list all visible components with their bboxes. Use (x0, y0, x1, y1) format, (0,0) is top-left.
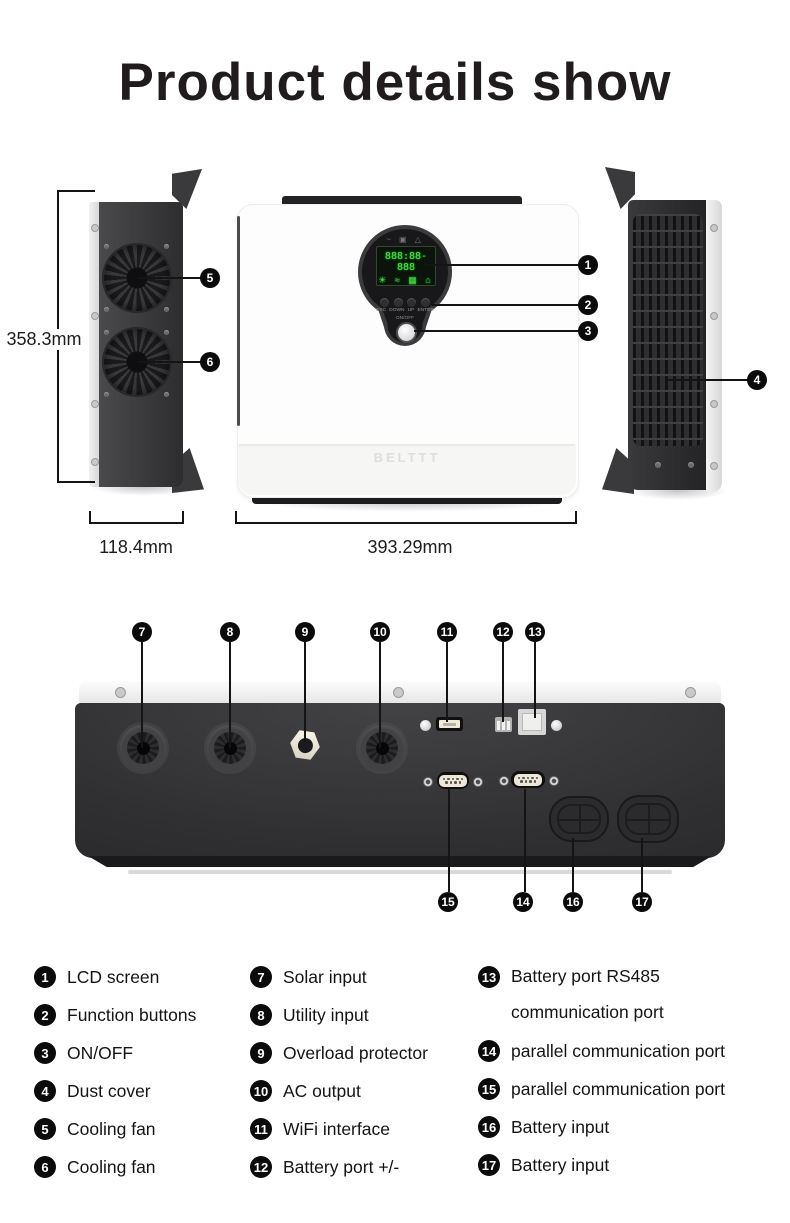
legend-label-14: parallel communication port (511, 1041, 725, 1062)
screw (710, 462, 718, 470)
callout-line-15 (448, 789, 450, 892)
legend-badge-3: 3 (34, 1042, 56, 1064)
screw (164, 244, 169, 249)
oval-inner (625, 803, 671, 834)
callout-badge-12: 12 (493, 622, 513, 642)
screw (164, 307, 169, 312)
legend-label-13: Battery port RS485 communication port (511, 958, 664, 1030)
grommet-ring (366, 732, 398, 764)
legend-badge-11: 11 (250, 1118, 272, 1140)
function-buttons (380, 298, 430, 307)
legend-badge-16: 16 (478, 1116, 500, 1138)
indicator-led (550, 719, 563, 732)
front-view-seam (239, 444, 575, 446)
db9-pin-row (445, 781, 461, 784)
callout-line-9 (304, 642, 306, 742)
callout-line-17 (641, 838, 643, 892)
callout-badge-2: 2 (578, 295, 598, 315)
legend-label-3: ON/OFF (67, 1043, 133, 1064)
screw (91, 400, 99, 408)
screw (164, 330, 169, 335)
depth-dimension-label: 118.4mm (86, 537, 186, 558)
parallel-port-db9-right[interactable] (511, 771, 545, 788)
callout-badge-4: 4 (747, 370, 767, 390)
callout-line-3 (414, 330, 578, 332)
legend-column-1: 1 LCD screen 2 Function buttons 3 ON/OFF… (34, 958, 196, 1186)
page-title: Product details show (0, 52, 790, 113)
wifi-usb-port[interactable] (436, 717, 463, 731)
legend-label-11: WiFi interface (283, 1119, 390, 1140)
callout-line-6 (138, 361, 202, 363)
legend-item-16: 16 Battery input (478, 1108, 725, 1146)
function-button-labels: ESC DOWN UP ENTER (376, 308, 434, 313)
legend-item-4: 4 Dust cover (34, 1072, 196, 1110)
legend-item-3: 3 ON/OFF (34, 1034, 196, 1072)
depth-dimension-tick-right (182, 511, 184, 524)
screw (688, 462, 694, 468)
height-dimension-tick-top (57, 190, 95, 192)
width-dimension-line (235, 522, 577, 524)
terminal-pin (497, 721, 500, 730)
legend-column-3: 13 Battery port RS485 communication port… (478, 958, 725, 1184)
legend-item-9: 9 Overload protector (250, 1034, 428, 1072)
bottom-view-base (88, 856, 712, 867)
legend-badge-15: 15 (478, 1078, 500, 1100)
callout-line-14 (524, 789, 526, 892)
db9-pin-row (518, 777, 539, 780)
grommet-center (137, 742, 150, 755)
legend-badge-8: 8 (250, 1004, 272, 1026)
legend-badge-1: 1 (34, 966, 56, 988)
depth-dimension-tick-left (89, 511, 91, 524)
legend-item-12: 12 Battery port +/- (250, 1148, 428, 1186)
depth-dimension-line (89, 522, 184, 524)
front-view-left-edge (237, 216, 240, 426)
screw (115, 687, 126, 698)
callout-badge-17: 17 (632, 892, 652, 912)
legend-badge-14: 14 (478, 1040, 500, 1062)
usb-inner (439, 720, 460, 728)
height-dimension-tick-bottom (57, 481, 95, 483)
legend-label-15: parallel communication port (511, 1079, 725, 1100)
legend-label-17: Battery input (511, 1155, 609, 1176)
legend-label-1: LCD screen (67, 967, 159, 988)
screw (104, 307, 109, 312)
lcd-screen: 888:88-888 ☀ ≈ ▦ ⌂ (376, 246, 436, 286)
legend-item-2: 2 Function buttons (34, 996, 196, 1034)
legend-label-4: Dust cover (67, 1081, 151, 1102)
legend-label-6: Cooling fan (67, 1157, 156, 1178)
legend-label-2: Function buttons (67, 1005, 196, 1026)
legend-item-5: 5 Cooling fan (34, 1110, 196, 1148)
db9-pin-row (443, 778, 464, 781)
legend-item-13: 13 Battery port RS485 communication port (478, 958, 725, 1032)
legend-label-16: Battery input (511, 1117, 609, 1138)
legend-badge-10: 10 (250, 1080, 272, 1102)
terminal-pin (502, 721, 505, 730)
screw (91, 458, 99, 466)
callout-badge-7: 7 (132, 622, 152, 642)
legend-label-13-line2: communication port (511, 994, 664, 1030)
callout-line-16 (572, 838, 574, 892)
enter-label: ENTER (418, 308, 434, 313)
esc-label: ESC (376, 308, 386, 313)
legend-item-14: 14 parallel communication port (478, 1032, 725, 1070)
grommet-center (376, 742, 389, 755)
down-button[interactable] (394, 298, 403, 307)
legend-badge-2: 2 (34, 1004, 56, 1026)
legend-item-7: 7 Solar input (250, 958, 428, 996)
down-label: DOWN (389, 308, 404, 313)
callout-line-13 (534, 642, 536, 718)
legend-item-10: 10 AC output (250, 1072, 428, 1110)
db9-screw (549, 776, 559, 786)
legend-badge-6: 6 (34, 1156, 56, 1178)
display-status-icons: ~ ▣ △ (383, 235, 427, 244)
callout-line-4 (668, 379, 748, 381)
legend-badge-4: 4 (34, 1080, 56, 1102)
legend-badge-7: 7 (250, 966, 272, 988)
db9-pin-row (520, 780, 536, 783)
callout-badge-8: 8 (220, 622, 240, 642)
screw (685, 687, 696, 698)
screw (655, 462, 661, 468)
legend-item-11: 11 WiFi interface (250, 1110, 428, 1148)
legend-badge-9: 9 (250, 1042, 272, 1064)
indicator-led (419, 719, 432, 732)
legend-badge-17: 17 (478, 1154, 500, 1176)
legend-item-15: 15 parallel communication port (478, 1070, 725, 1108)
screw (91, 312, 99, 320)
terminal-pin (507, 721, 510, 730)
db9-inner (439, 775, 467, 787)
legend-item-8: 8 Utility input (250, 996, 428, 1034)
up-button[interactable] (407, 298, 416, 307)
legend-column-2: 7 Solar input 8 Utility input 9 Overload… (250, 958, 428, 1186)
legend-label-13-line1: Battery port RS485 (511, 958, 664, 994)
usb-slot (443, 723, 456, 726)
screw (710, 224, 718, 232)
esc-button[interactable] (380, 298, 389, 307)
screw (104, 392, 109, 397)
callout-line-1 (424, 264, 578, 266)
battery-input-grommet-left (549, 796, 609, 842)
enter-button[interactable] (421, 298, 430, 307)
rj45-inner (522, 713, 542, 731)
up-label: UP (408, 308, 415, 313)
callout-badge-15: 15 (438, 892, 458, 912)
screw (104, 244, 109, 249)
callout-line-10 (379, 642, 381, 748)
parallel-port-db9-left[interactable] (437, 772, 469, 789)
callout-line-8 (229, 642, 231, 748)
callout-line-5 (138, 277, 202, 279)
legend-label-10: AC output (283, 1081, 361, 1102)
callout-badge-5: 5 (200, 268, 220, 288)
height-dimension-label: 358.3mm (2, 329, 86, 350)
legend-label-7: Solar input (283, 967, 367, 988)
legend-badge-5: 5 (34, 1118, 56, 1140)
ac-output-grommet (359, 725, 405, 771)
width-dimension-tick-right (575, 511, 577, 524)
screw (164, 392, 169, 397)
power-button[interactable] (396, 322, 417, 343)
callout-line-11 (446, 642, 448, 722)
width-dimension-tick-left (235, 511, 237, 524)
rs485-rj45-port[interactable] (518, 709, 546, 735)
screw (710, 312, 718, 320)
oval-inner (557, 804, 601, 834)
battery-input-grommet-right (617, 795, 679, 843)
db9-inner (514, 774, 542, 786)
grommet-ring (127, 732, 159, 764)
callout-badge-11: 11 (437, 622, 457, 642)
left-view-front-strip (89, 202, 99, 487)
screw (91, 224, 99, 232)
power-button-label: ON/OFF (389, 316, 421, 321)
legend-item-1: 1 LCD screen (34, 958, 196, 996)
screw (104, 330, 109, 335)
callout-line-12 (502, 642, 504, 722)
right-view-front-strip (706, 200, 722, 492)
lcd-icons: ☀ ≈ ▦ ⌂ (377, 275, 435, 286)
legend-item-17: 17 Battery input (478, 1146, 725, 1184)
legend-label-8: Utility input (283, 1005, 369, 1026)
width-dimension-label: 393.29mm (345, 537, 475, 558)
callout-badge-1: 1 (578, 255, 598, 275)
legend-badge-12: 12 (250, 1156, 272, 1178)
db9-screw (499, 776, 509, 786)
screw (393, 687, 404, 698)
callout-badge-10: 10 (370, 622, 390, 642)
legend-label-12: Battery port +/- (283, 1157, 399, 1178)
db9-screw (473, 777, 483, 787)
dust-cover-vents (633, 214, 703, 446)
callout-badge-16: 16 (563, 892, 583, 912)
screw (710, 400, 718, 408)
db9-screw (423, 777, 433, 787)
legend-item-6: 6 Cooling fan (34, 1148, 196, 1186)
bottom-view-shadow (128, 870, 672, 874)
callout-line-2 (432, 304, 578, 306)
legend-label-5: Cooling fan (67, 1119, 156, 1140)
callout-badge-9: 9 (295, 622, 315, 642)
legend-badge-13: 13 (478, 966, 500, 988)
callout-line-7 (141, 642, 143, 748)
callout-badge-13: 13 (525, 622, 545, 642)
lcd-readout: 888:88-888 (377, 251, 435, 273)
callout-badge-3: 3 (578, 321, 598, 341)
product-details-page: Product details show 358.3mm 5 6 BELTTT (0, 0, 790, 1223)
callout-badge-14: 14 (513, 892, 533, 912)
legend-label-9: Overload protector (283, 1043, 428, 1064)
solar-input-grommet (120, 725, 166, 771)
callout-badge-6: 6 (200, 352, 220, 372)
brand-logo: BELTTT (237, 450, 577, 465)
